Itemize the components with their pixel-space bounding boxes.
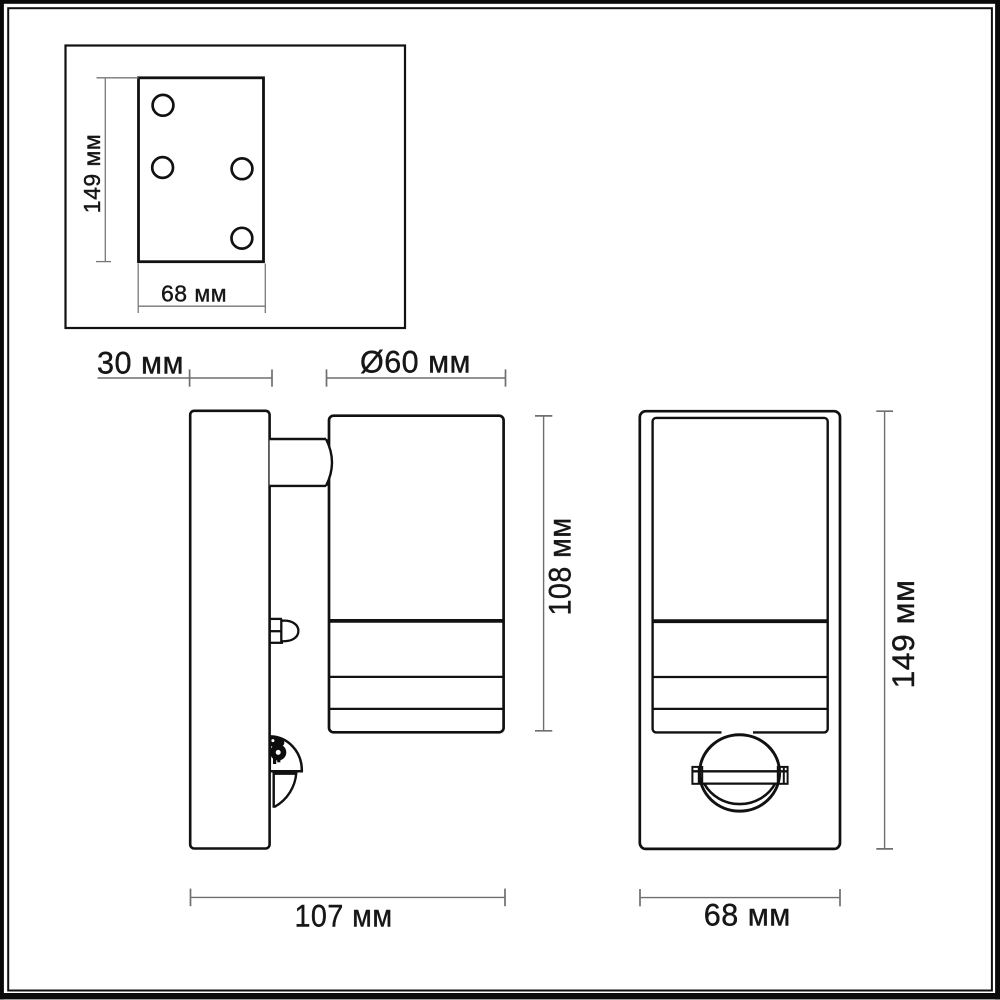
svg-text:Ø60 мм: Ø60 мм: [360, 343, 471, 379]
svg-text:108 мм: 108 мм: [542, 518, 578, 616]
svg-text:107 мм: 107 мм: [295, 898, 393, 934]
svg-text:149 мм: 149 мм: [79, 134, 105, 213]
svg-text:68 мм: 68 мм: [161, 281, 227, 307]
svg-text:30 мм: 30 мм: [97, 345, 184, 381]
svg-text:149 мм: 149 мм: [885, 580, 921, 689]
svg-text:68 мм: 68 мм: [704, 897, 791, 933]
